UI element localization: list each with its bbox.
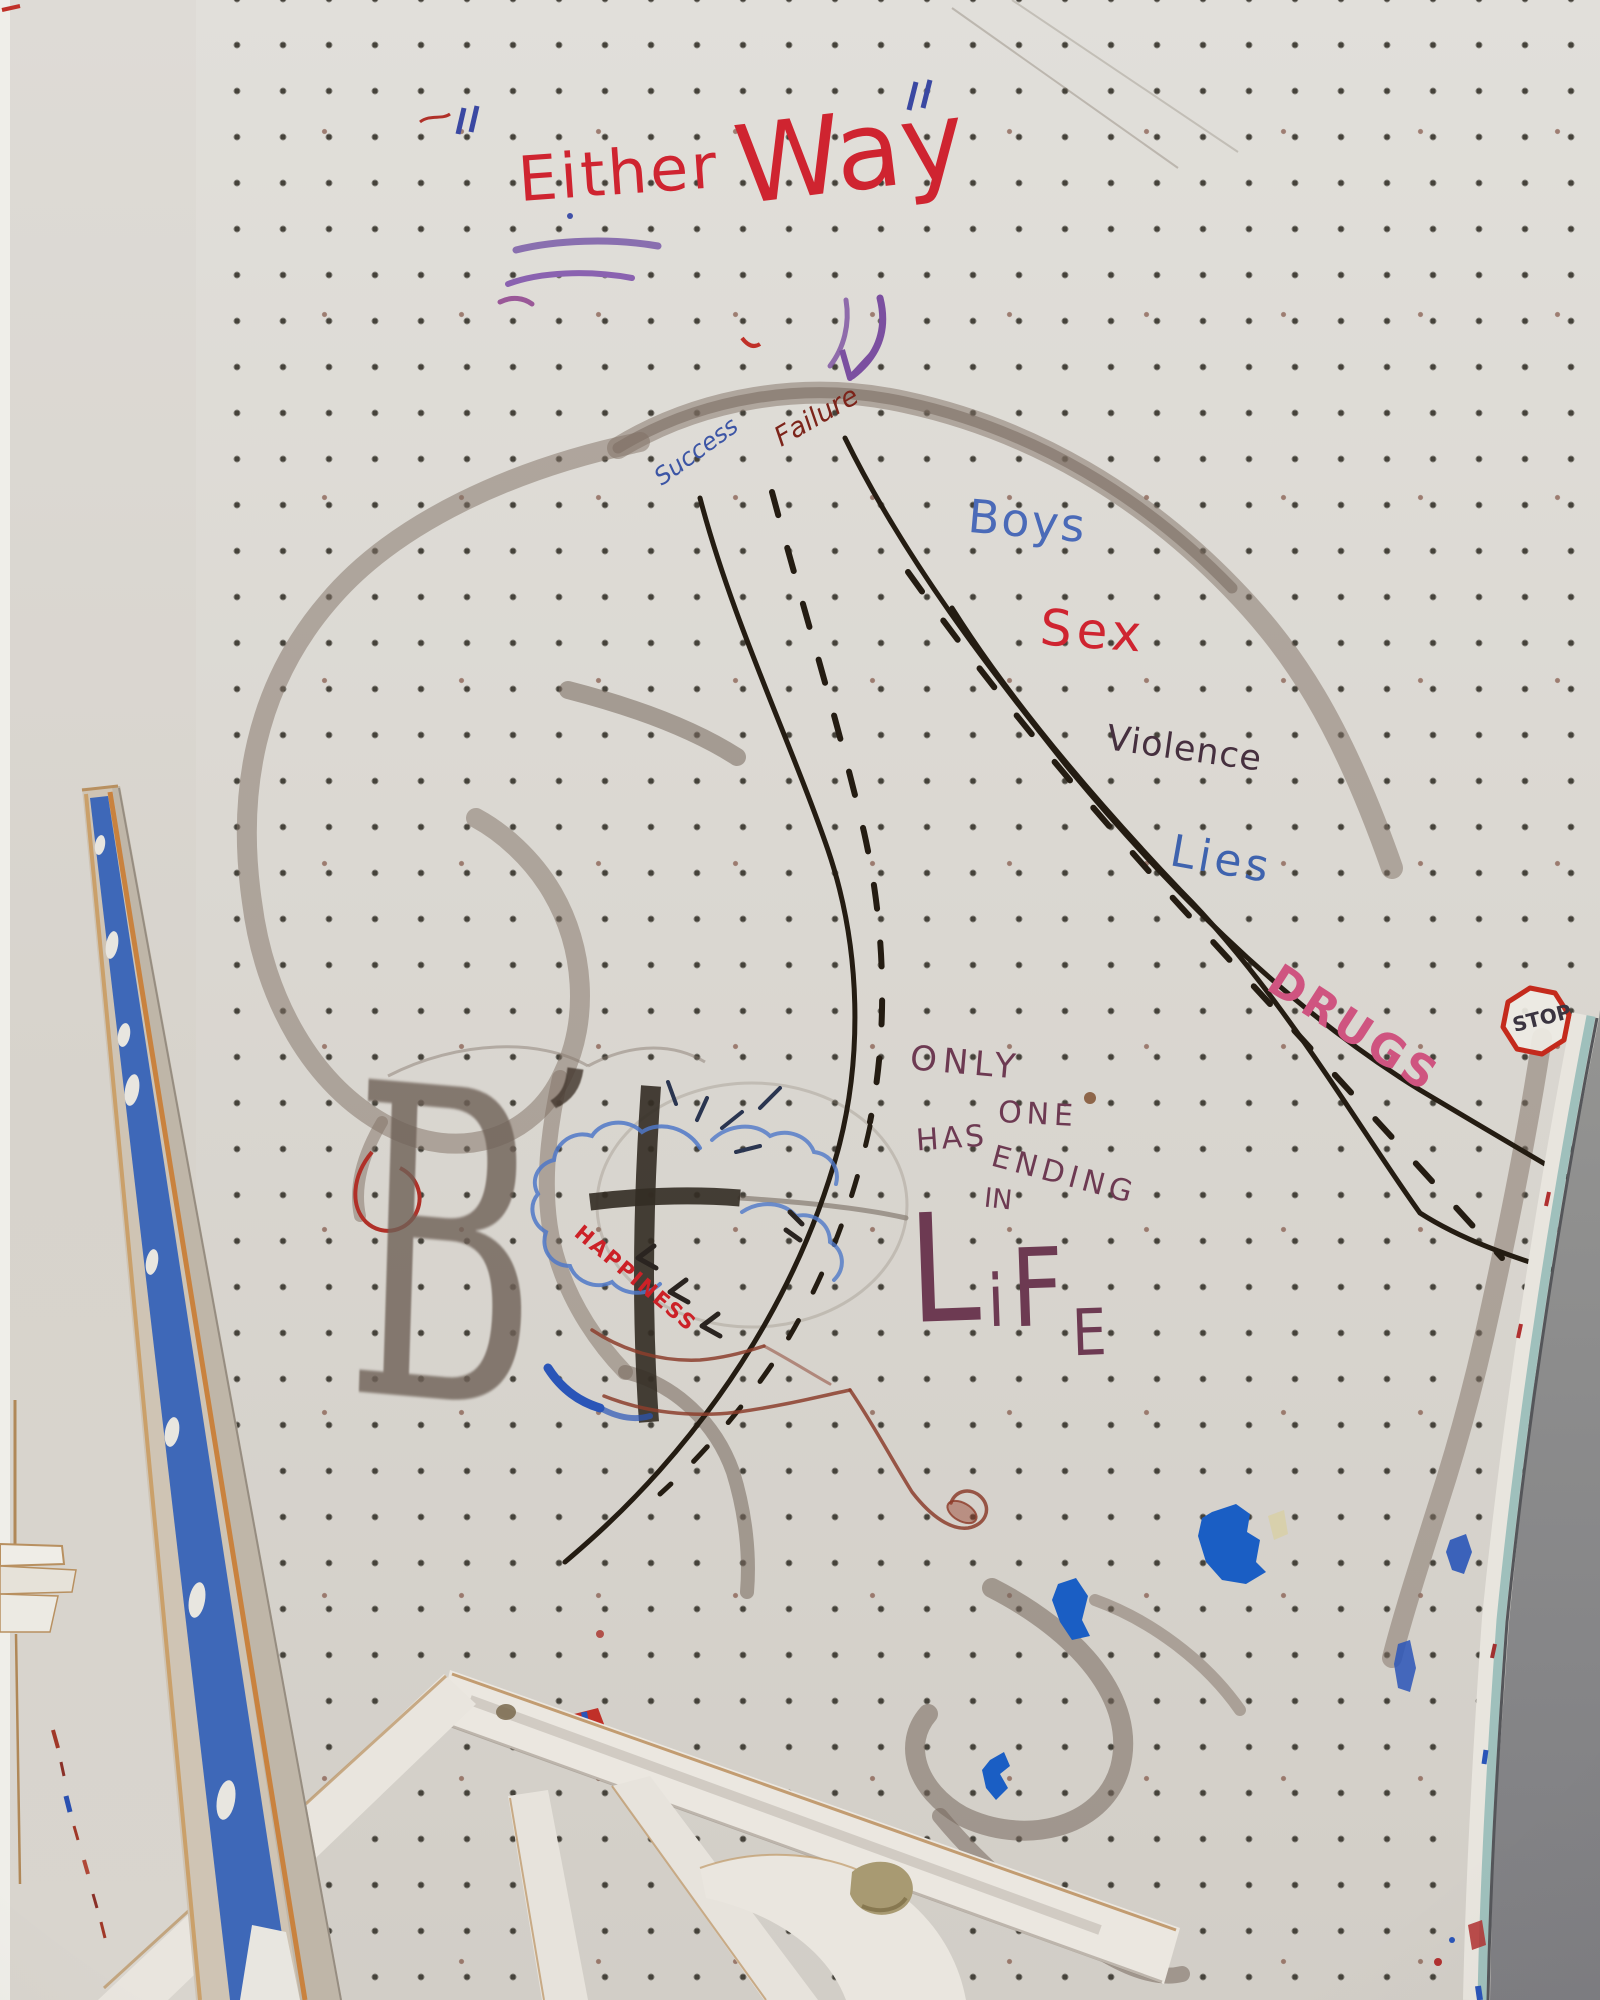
label-boys: Boys	[966, 493, 1088, 549]
message-word-life: LiFE	[906, 1189, 1107, 1346]
left-molding	[0, 1400, 76, 1884]
life-letter-F: F	[1009, 1235, 1066, 1345]
label-sex: Sex	[1038, 602, 1147, 659]
purple-arrow	[830, 298, 883, 378]
life-letter-E: E	[1071, 1301, 1108, 1366]
leaning-board	[82, 786, 342, 2000]
hairline-scratches	[952, 0, 1238, 168]
message-word-has: HAS	[915, 1122, 988, 1157]
graffiti-drawing-layer	[0, 0, 1600, 2000]
photo-pegboard-graffiti: Either Way Success Failure Boys Sex Viol…	[0, 0, 1600, 2000]
sun-ray-marks	[668, 1082, 780, 1152]
message-word-one: ONE	[997, 1098, 1078, 1132]
life-letter-L: L	[906, 1194, 982, 1346]
message-word-only: ONLY	[909, 1041, 1023, 1085]
title-word-either: Either	[516, 135, 721, 211]
title-word-way: Way	[729, 86, 970, 221]
life-letter-i: i	[986, 1265, 1006, 1338]
big-painted-letter-b: B	[342, 1028, 545, 1474]
title-underline-squiggle	[500, 241, 658, 304]
paint-drip-trail	[53, 1730, 105, 1938]
blue-paint-splotches	[982, 1504, 1472, 1800]
